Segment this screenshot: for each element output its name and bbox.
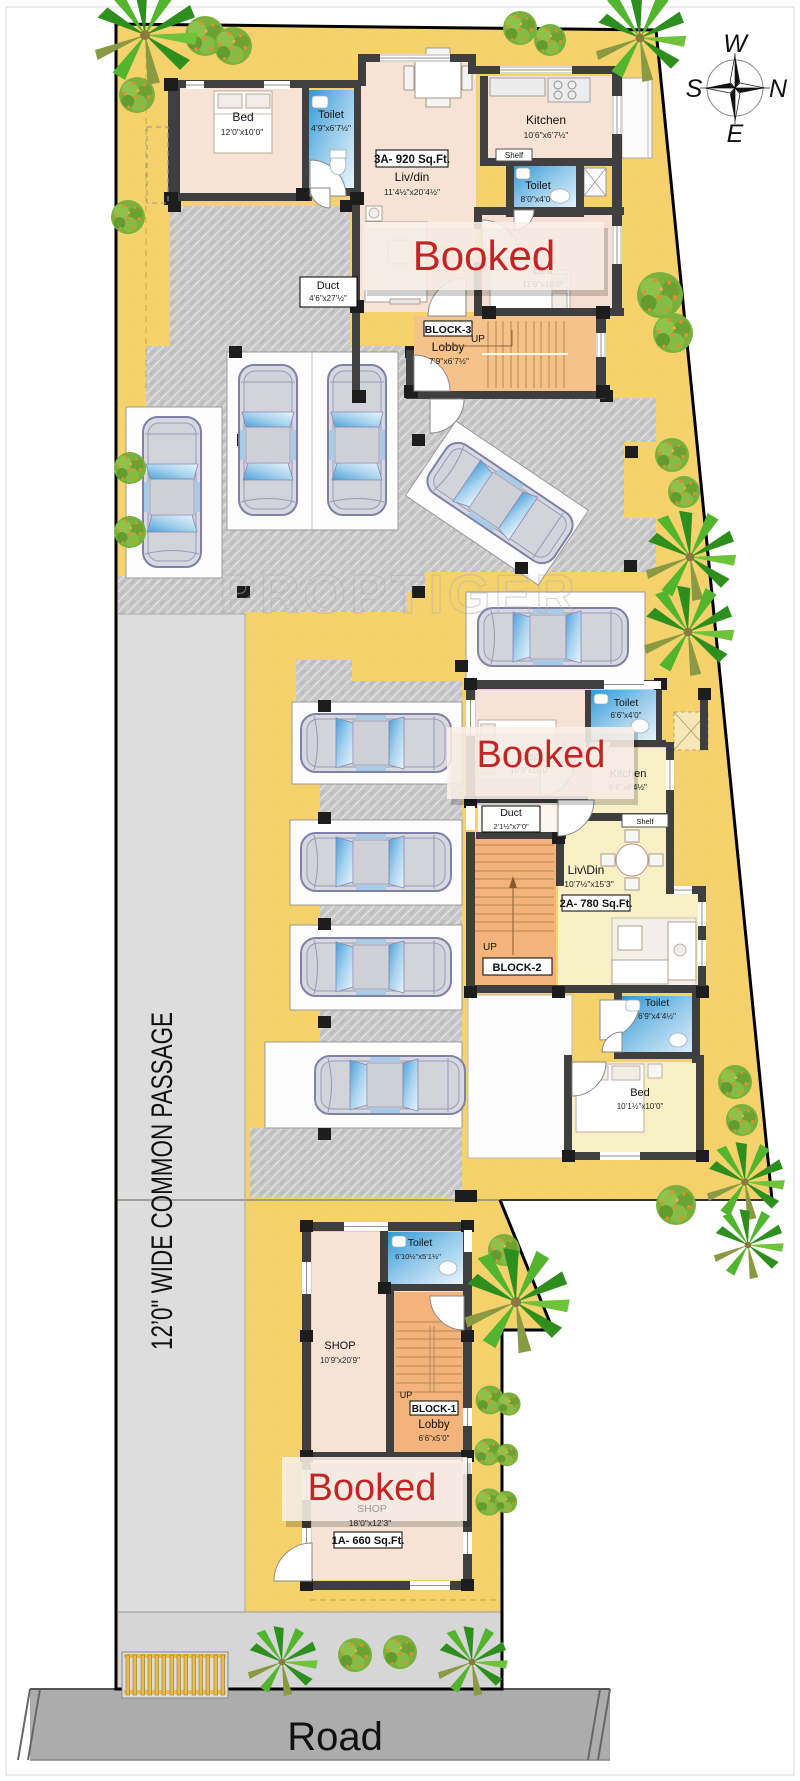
svg-text:Lobby: Lobby [432, 340, 465, 354]
svg-text:8’0"x4’0": 8’0"x4’0" [521, 194, 554, 204]
svg-text:Lobby: Lobby [418, 1419, 450, 1431]
svg-text:3A- 920 Sq.Ft.: 3A- 920 Sq.Ft. [374, 154, 450, 166]
svg-text:6’9"x4’4½": 6’9"x4’4½" [638, 1012, 676, 1021]
svg-text:Booked: Booked [413, 232, 555, 279]
svg-text:Bed: Bed [630, 1087, 650, 1099]
svg-text:7’9"x6’7½": 7’9"x6’7½" [429, 356, 469, 366]
svg-text:4’9"x6’7½": 4’9"x6’7½" [311, 123, 351, 133]
svg-text:BLOCK-3: BLOCK-3 [425, 324, 472, 336]
svg-text:Toilet: Toilet [318, 109, 344, 121]
svg-text:S: S [686, 75, 703, 103]
svg-text:BLOCK-2: BLOCK-2 [493, 962, 542, 974]
svg-text:4’6"x27’½": 4’6"x27’½" [309, 294, 347, 303]
svg-text:Liv\Din: Liv\Din [568, 863, 605, 877]
svg-text:Kitchen: Kitchen [526, 113, 566, 127]
svg-text:6’6"x5’0": 6’6"x5’0" [418, 1434, 449, 1443]
svg-text:SHOP: SHOP [324, 1340, 355, 1352]
svg-text:W: W [723, 30, 749, 58]
svg-text:18’0"x12’3": 18’0"x12’3" [349, 1518, 391, 1528]
svg-text:Shelf: Shelf [505, 151, 524, 160]
svg-text:2A- 780 Sq.Ft.: 2A- 780 Sq.Ft. [560, 898, 633, 910]
svg-text:Bed: Bed [232, 110, 253, 124]
svg-text:Shelf: Shelf [636, 817, 654, 826]
svg-text:UP: UP [483, 942, 497, 953]
svg-text:UP: UP [471, 334, 485, 345]
svg-text:Duct: Duct [500, 807, 522, 819]
svg-text:Booked: Booked [477, 734, 606, 776]
svg-text:BLOCK-1: BLOCK-1 [412, 1404, 457, 1415]
svg-text:PROPTIGER: PROPTIGER [219, 563, 579, 625]
svg-text:Duct: Duct [317, 280, 340, 292]
svg-text:2’1½"x7’0": 2’1½"x7’0" [493, 822, 529, 831]
svg-text:11’4½"x20’4½": 11’4½"x20’4½" [384, 187, 440, 197]
svg-text:SHOP: SHOP [357, 1503, 387, 1515]
svg-text:6’10½"x5’1½": 6’10½"x5’1½" [395, 1252, 441, 1261]
svg-text:10’7½"x15’3": 10’7½"x15’3" [564, 879, 614, 889]
svg-text:12’0" WIDE COMMON PASSAGE: 12’0" WIDE COMMON PASSAGE [146, 1012, 179, 1350]
svg-text:Road: Road [287, 1715, 383, 1759]
svg-text:10’1½"x10’0": 10’1½"x10’0" [617, 1102, 664, 1111]
svg-text:1A- 660 Sq.Ft.: 1A- 660 Sq.Ft. [332, 1535, 405, 1547]
svg-text:10’9"x20’9": 10’9"x20’9" [320, 1356, 360, 1365]
svg-text:Liv/din: Liv/din [395, 170, 430, 184]
svg-text:Toilet: Toilet [525, 180, 551, 192]
svg-text:10’6"x6’7½": 10’6"x6’7½" [524, 130, 569, 140]
svg-text:Toilet: Toilet [645, 997, 670, 1009]
svg-text:E: E [727, 120, 744, 148]
svg-text:N: N [769, 75, 788, 103]
svg-text:Toilet: Toilet [408, 1237, 433, 1249]
svg-text:UP: UP [400, 1390, 413, 1400]
svg-text:12’0"x10’0": 12’0"x10’0" [221, 127, 263, 137]
svg-text:Toilet: Toilet [614, 697, 639, 709]
svg-text:6’6"x4’0": 6’6"x4’0" [610, 711, 641, 720]
